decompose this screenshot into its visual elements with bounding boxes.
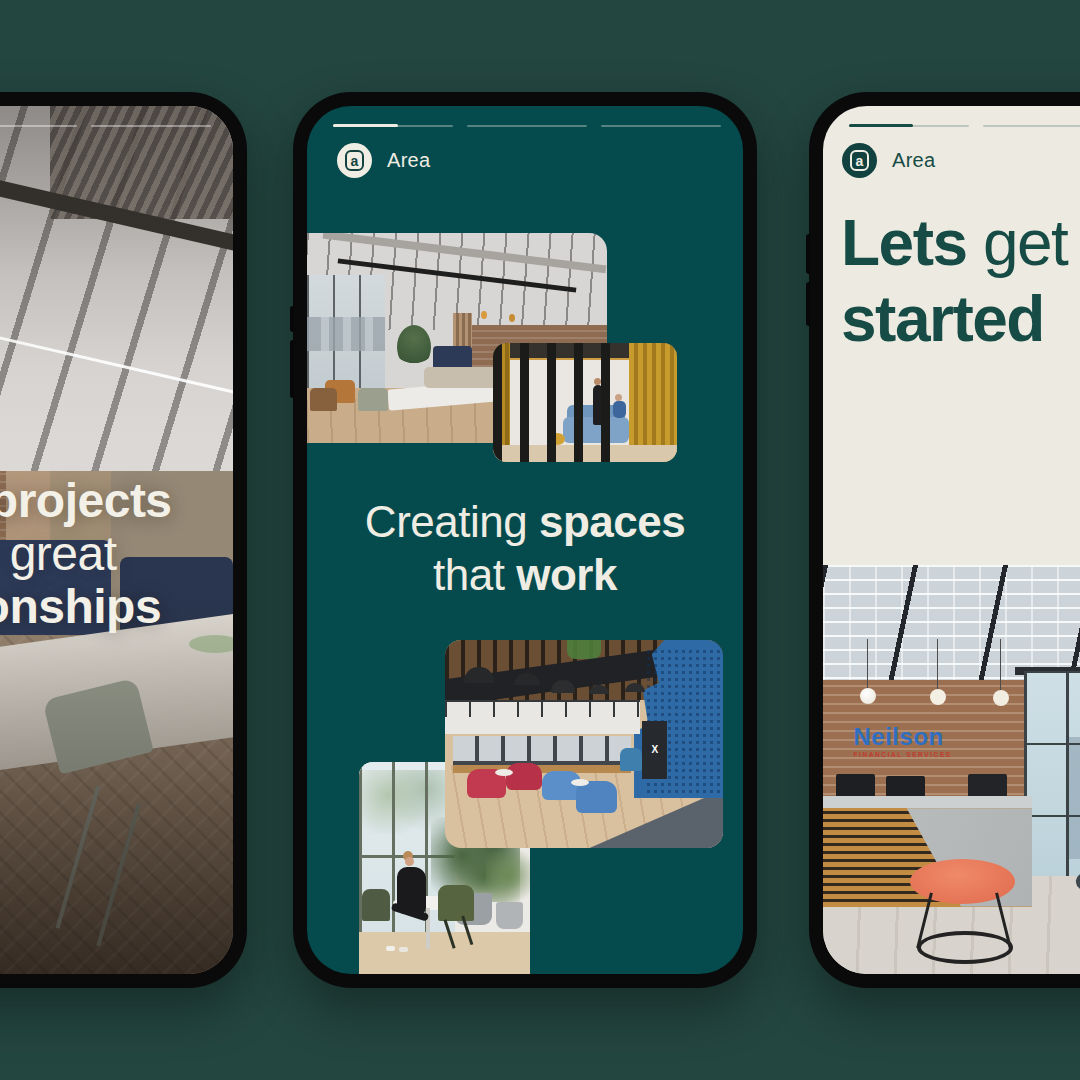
power-button[interactable] [806,282,810,326]
headline-line: started [841,281,1067,357]
area-logomark: a [345,150,364,171]
brand-logo: a Area [337,143,430,178]
chair-olive-back [438,885,474,921]
headline-line: Great projects [0,474,233,527]
story-progress [333,125,721,127]
story-screen-creating-spaces[interactable]: a Area [307,106,743,974]
headline-line: Lets get [841,205,1067,281]
progress-segment [467,125,587,127]
railing [445,700,640,717]
brand-logo: a Area [842,143,935,178]
phone-left: Great projects with great relationships [0,92,247,988]
headline-line: relationships [0,580,233,633]
headline-line: with great [0,527,233,580]
chair-brown [310,388,337,411]
chair-teal [620,748,642,771]
chair-sage [358,388,388,411]
area-logo-label: Area [892,149,935,172]
reception-photo: Neilson FINANCIAL SERVICES [823,565,1080,974]
progress-segment [0,125,77,127]
reception-sign: Neilson FINANCIAL SERVICES [854,725,952,758]
headline-word: that [433,550,516,599]
side-table [495,769,513,776]
volume-button[interactable] [806,234,810,274]
area-logo-badge: a [337,143,372,178]
headline-word: Lets [841,207,967,279]
monitor [836,774,875,799]
headline-word: work [516,550,617,599]
neilson-sign: Neilson [854,725,952,749]
desk-counter [823,796,1032,808]
headline-word: projects [0,474,172,527]
globe-lamp [860,688,876,704]
headline-word: get [967,207,1068,279]
kiosk-label: X [652,745,659,755]
volume-button[interactable] [290,306,294,332]
headline-word: spaces [539,497,685,546]
city-view [307,317,385,351]
pendant-cords [867,639,868,692]
chair-olive-front [362,889,389,921]
phone-middle: a Area [293,92,757,988]
headline-lets-get-started: Lets get started [841,205,1067,357]
plant-top [567,640,600,659]
headline-line: that work [307,548,743,601]
meeting-nook-photo [493,343,677,462]
timber-slats [493,343,624,462]
mockup-stage: Great projects with great relationships … [0,0,1080,1080]
headline-relationships: Great projects with great relationships [0,474,233,633]
pendant-light [481,311,487,319]
progress-fill [849,124,913,127]
area-logomark: a [850,150,869,171]
area-logo-badge: a [842,143,877,178]
progress-segment [333,125,453,127]
progress-segment [983,125,1080,127]
area-logo-label: Area [387,149,430,172]
headline-word: Creating [365,497,539,546]
headline-line: Creating spaces [307,495,743,548]
armchair-red [506,763,542,790]
armchair-blue [576,781,618,812]
woman-shoes [386,946,395,951]
story-screen-lets-get-started[interactable]: a Area Lets get started [823,106,1080,974]
phone-right: a Area Lets get started [809,92,1080,988]
progress-fill [333,124,398,127]
stool-base-ring [917,931,1013,964]
progress-segment [91,125,211,127]
progress-segment [849,125,969,127]
headline-creating-spaces: Creating spaces that work [307,495,743,601]
banquette-cushions [453,736,631,765]
story-progress [0,125,211,127]
power-button[interactable] [290,340,294,398]
story-progress [849,125,1080,127]
curtain-right [629,343,677,462]
progress-segment [601,125,721,127]
neilson-sign-subtitle: FINANCIAL SERVICES [854,751,952,758]
story-screen-relationships[interactable]: Great projects with great relationships [0,106,233,974]
planter [496,902,523,930]
floor [359,932,530,974]
kiosk: X [642,721,667,779]
mezzanine-lounge-photo: X [445,640,723,848]
